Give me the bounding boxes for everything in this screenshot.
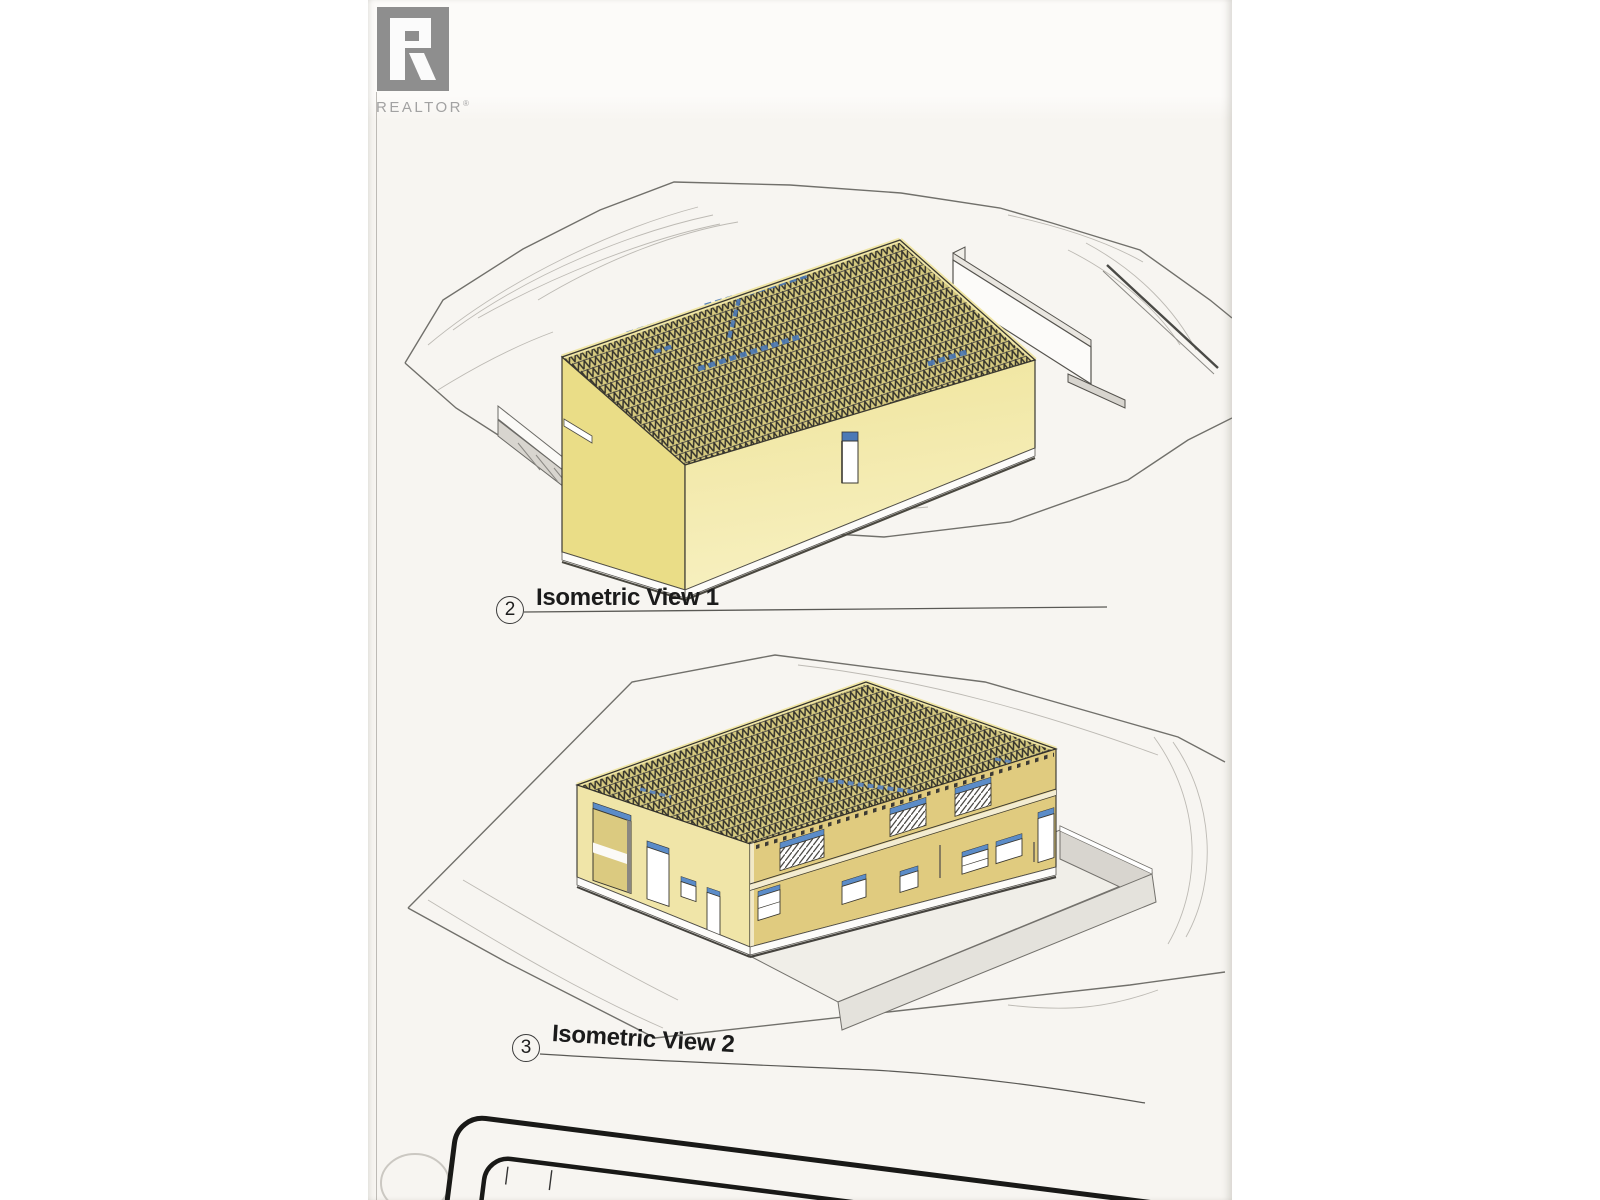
isometric-view-1-drawing <box>405 182 1232 600</box>
view-1-title: Isometric View 1 <box>536 584 719 612</box>
view-1-label: 2 Isometric View 1 <box>496 596 719 624</box>
building-1-door <box>842 432 858 483</box>
faint-label-circle <box>381 1154 449 1200</box>
building-1 <box>562 240 1035 600</box>
site-wall-edge-inner <box>1103 271 1214 374</box>
detail-frame-partial <box>381 1115 1232 1200</box>
view-1-number-badge: 2 <box>496 596 524 624</box>
isometric-view-2-drawing <box>408 655 1225 1038</box>
view-2-label: 3 Isometric View 2 <box>512 1034 735 1062</box>
site-wall-edge <box>1107 265 1218 368</box>
drawing-sheet: REALTOR® <box>368 0 1232 1200</box>
scanned-page-canvas: REALTOR® <box>0 0 1600 1200</box>
front-door <box>1038 808 1054 863</box>
view-2-number-badge: 3 <box>512 1034 540 1062</box>
